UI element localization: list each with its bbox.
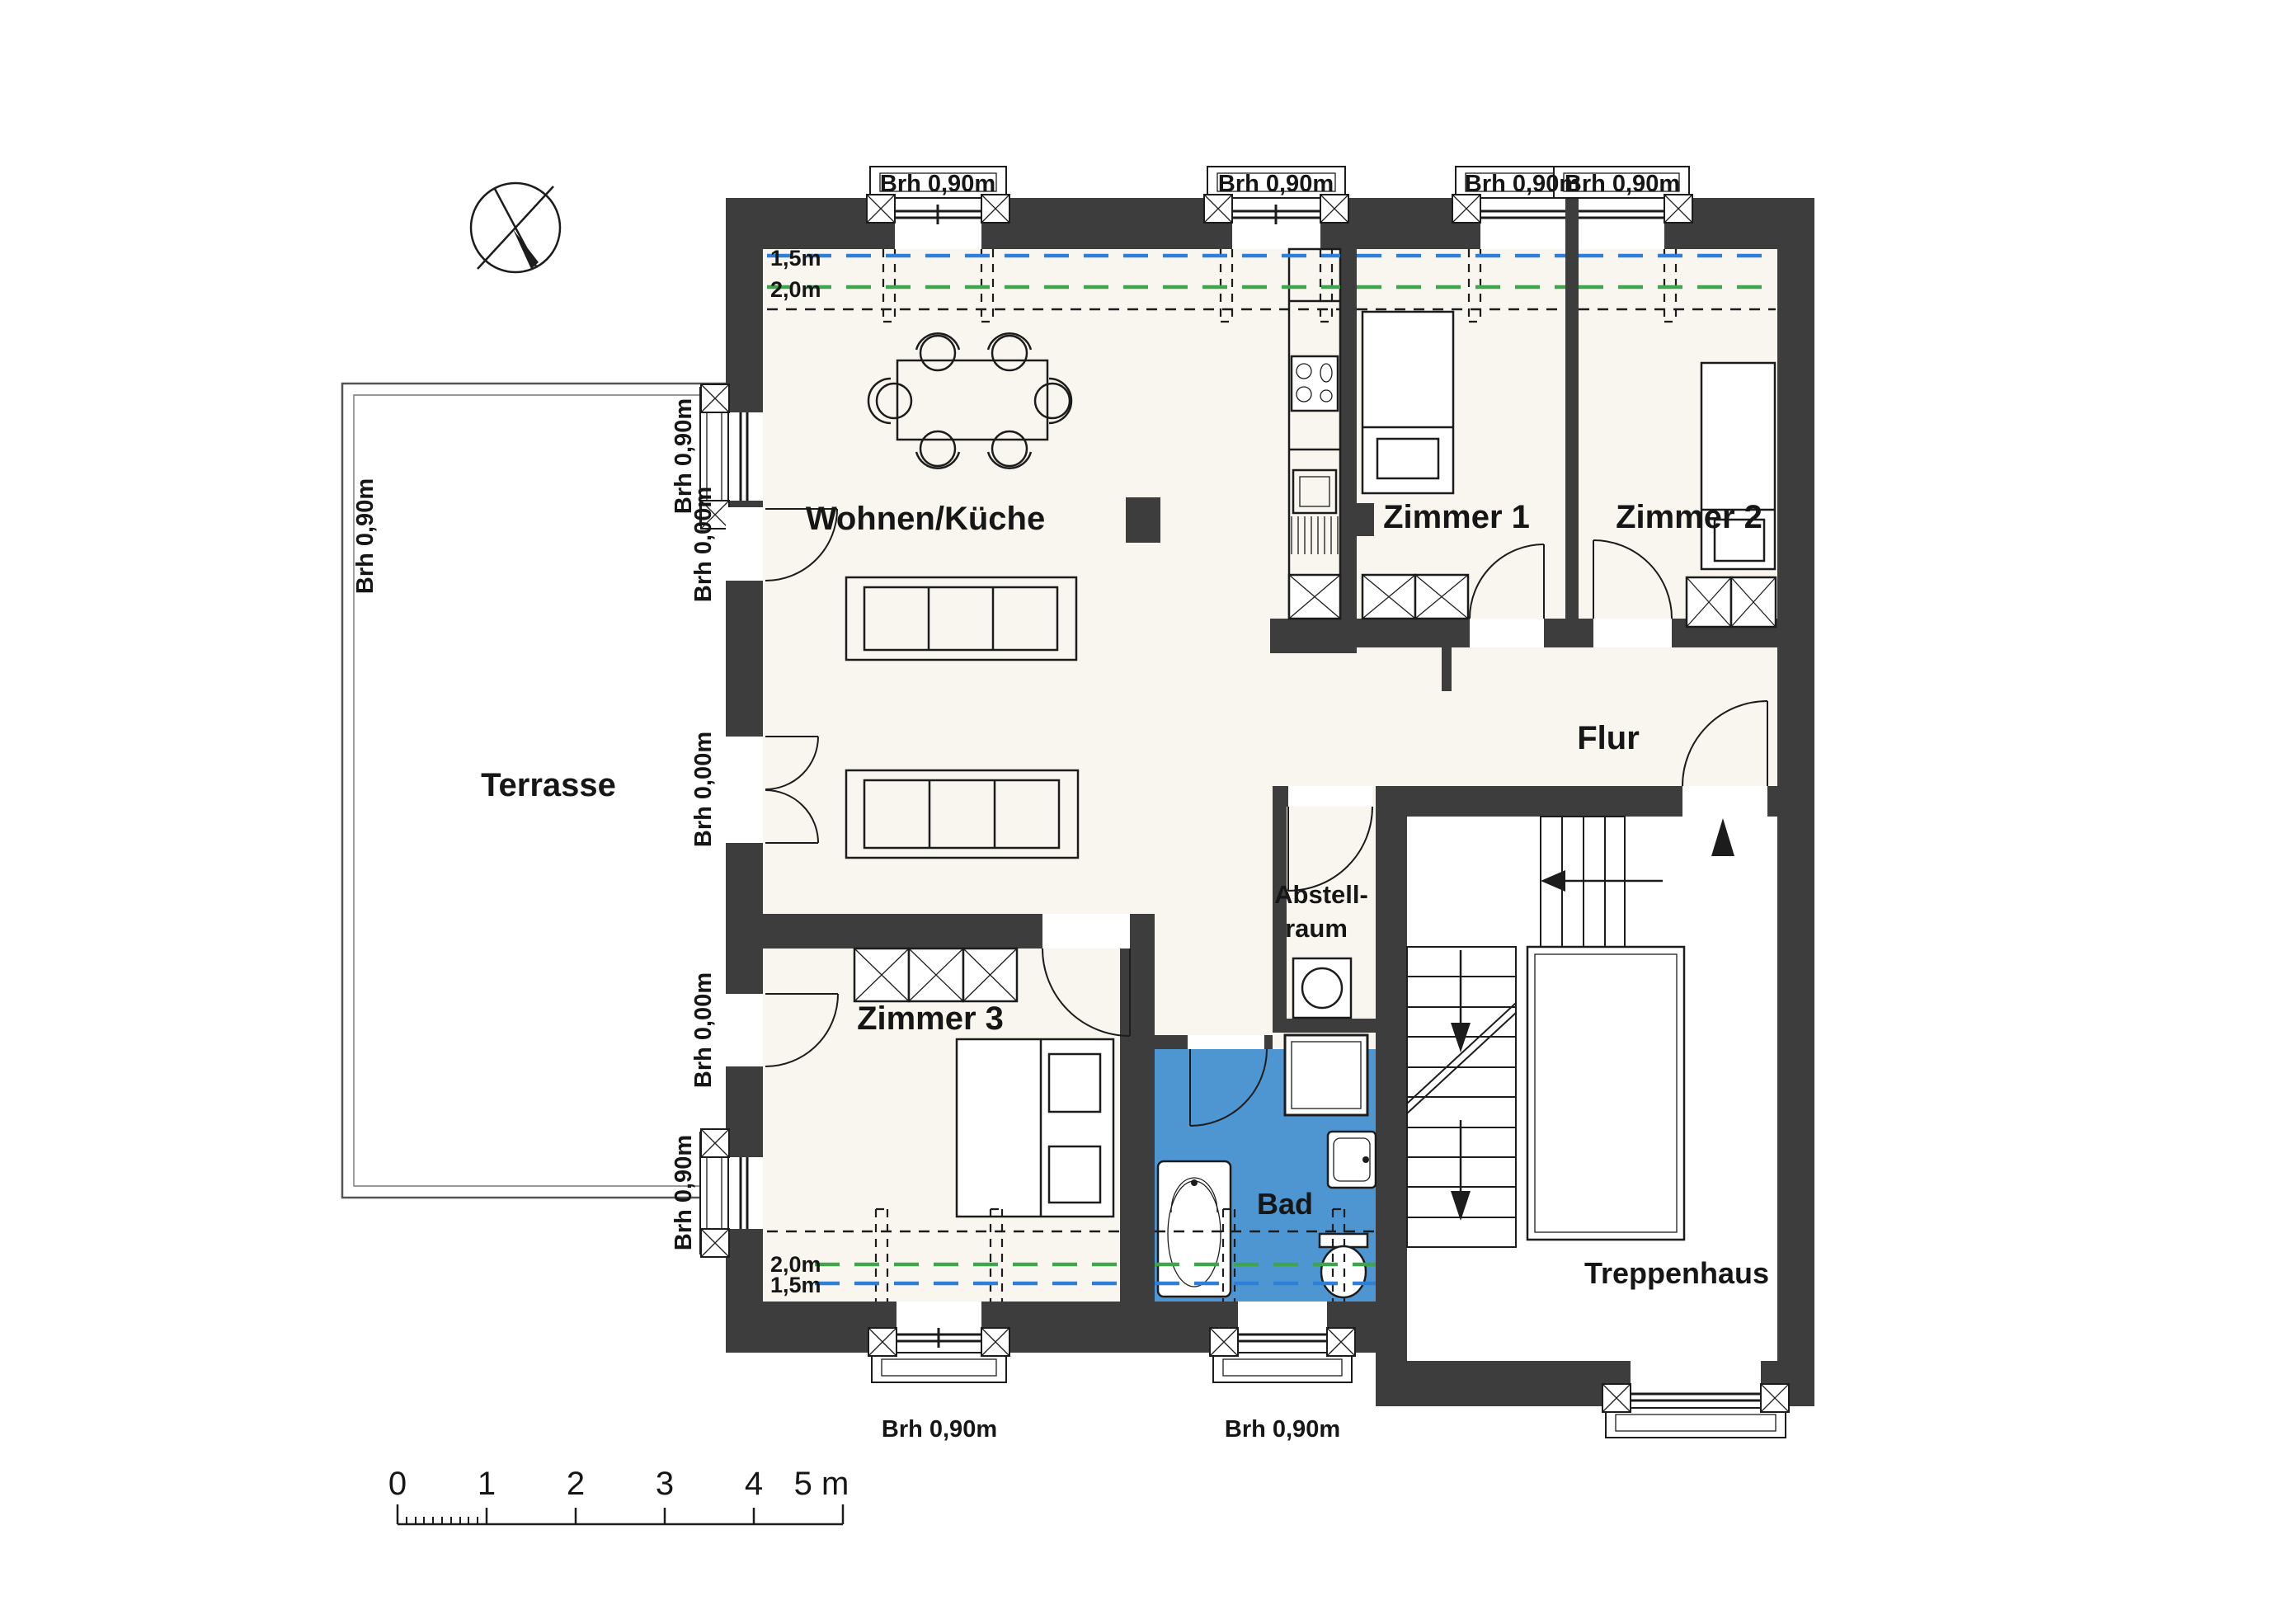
chimney-block — [1126, 497, 1160, 543]
height-label-15-bottom: 1,5m — [770, 1273, 821, 1297]
room-label-storage-line1: Abstell- — [1274, 880, 1368, 909]
room-label-room3: Zimmer 3 — [857, 1000, 1004, 1037]
sink-bathroom — [1328, 1132, 1376, 1188]
sill-label-left-door-upper: Brh 0,00m — [690, 487, 717, 602]
room-label-room1: Zimmer 1 — [1383, 499, 1530, 535]
wardrobe-room2 — [1687, 577, 1776, 627]
sill-label-top-1: Brh 0,90m — [880, 171, 995, 197]
scale-tick-label-5: 5 m — [794, 1466, 849, 1502]
scale-bar: 0 1 2 3 4 5 m — [388, 1466, 849, 1524]
sill-label-left-window-room3: Brh 0,90m — [671, 1135, 697, 1250]
sill-label-left-door-room3: Brh 0,00m — [690, 972, 717, 1088]
height-label-15-top: 1,5m — [770, 246, 821, 271]
floor-plan-page: 0 1 2 3 4 5 m Wohnen/Küche Zimmer 1 Zimm… — [0, 0, 2273, 1624]
sill-label-top-2: Brh 0,90m — [1218, 171, 1334, 197]
room-label-living: Wohnen/Küche — [806, 501, 1045, 537]
sill-label-bottom-2: Brh 0,90m — [1225, 1416, 1340, 1443]
room-label-storage-line2: raum — [1285, 914, 1348, 943]
bed-room3 — [957, 1039, 1113, 1217]
sill-label-terrace: Brh 0,90m — [352, 478, 379, 594]
scale-tick-label-0: 0 — [388, 1466, 407, 1502]
sill-label-top-3: Brh 0,90m — [1465, 171, 1580, 197]
cooktop — [1292, 356, 1338, 411]
room-label-terrace: Terrasse — [481, 767, 616, 803]
bathtub — [1158, 1161, 1231, 1297]
scale-tick-label-1: 1 — [478, 1466, 496, 1502]
bed-room2 — [1701, 363, 1775, 569]
height-label-20-top: 2,0m — [770, 277, 821, 302]
room-label-room2: Zimmer 2 — [1616, 499, 1762, 535]
sill-label-bottom-1: Brh 0,90m — [882, 1416, 997, 1443]
scale-tick-label-2: 2 — [567, 1466, 585, 1502]
shower — [1285, 1035, 1367, 1115]
room-label-hallway: Flur — [1577, 720, 1640, 756]
sill-label-left-door-double: Brh 0,00m — [690, 732, 717, 847]
wardrobe-room1 — [1362, 575, 1468, 619]
room-label-bath: Bad — [1257, 1187, 1313, 1221]
sill-label-top-4: Brh 0,90m — [1565, 171, 1680, 197]
wardrobe-room3 — [854, 949, 1017, 1001]
north-compass-icon — [471, 183, 560, 272]
floor-plan-drawing: 0 1 2 3 4 5 m Wohnen/Küche Zimmer 1 Zimm… — [0, 0, 2273, 1624]
scale-tick-label-4: 4 — [745, 1466, 763, 1502]
scale-tick-label-3: 3 — [656, 1466, 674, 1502]
room-label-stairwell: Treppenhaus — [1584, 1256, 1769, 1290]
washing-machine — [1293, 958, 1351, 1018]
bed-room1 — [1362, 312, 1453, 493]
